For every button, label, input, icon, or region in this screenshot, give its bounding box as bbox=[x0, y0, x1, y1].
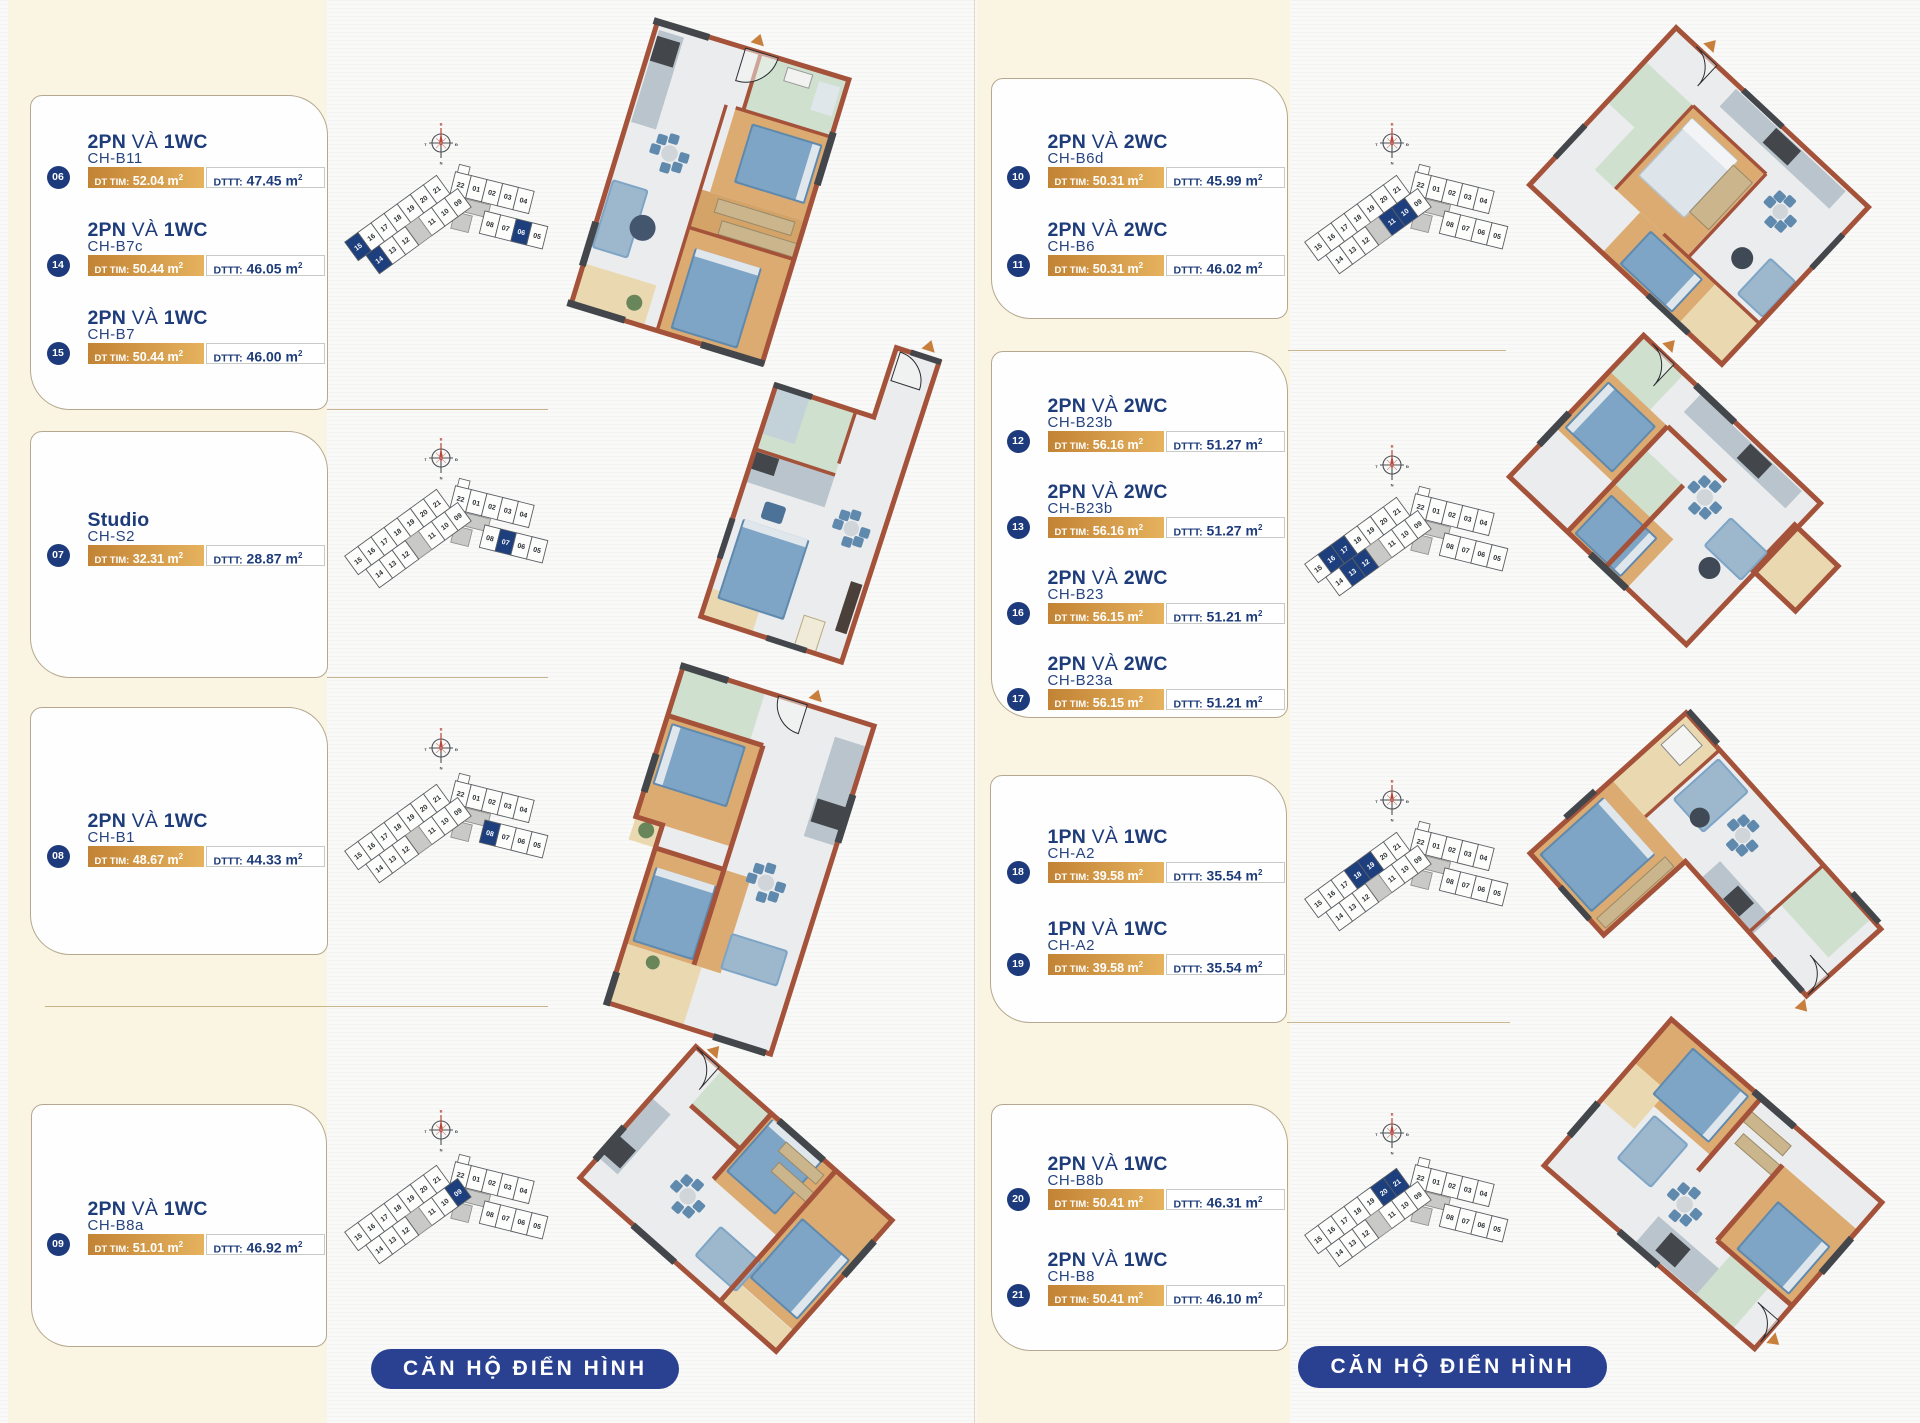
svg-text:B: B bbox=[1391, 779, 1394, 784]
svg-text:T: T bbox=[424, 457, 427, 462]
svg-text:T: T bbox=[1375, 142, 1378, 147]
svg-text:N: N bbox=[440, 161, 443, 166]
svg-text:T: T bbox=[424, 747, 427, 752]
svg-text:N: N bbox=[1391, 161, 1394, 166]
svg-text:B: B bbox=[1391, 122, 1394, 127]
svg-text:N: N bbox=[440, 476, 443, 481]
svg-text:Đ: Đ bbox=[455, 747, 458, 752]
svg-text:B: B bbox=[1391, 1112, 1394, 1117]
svg-text:B: B bbox=[440, 122, 443, 127]
svg-text:N: N bbox=[1391, 818, 1394, 823]
svg-text:N: N bbox=[1391, 483, 1394, 488]
svg-text:T: T bbox=[424, 1129, 427, 1134]
svg-text:N: N bbox=[440, 1148, 443, 1153]
svg-text:Đ: Đ bbox=[1406, 464, 1409, 469]
svg-text:Đ: Đ bbox=[1406, 1132, 1409, 1137]
svg-text:N: N bbox=[1391, 1151, 1394, 1156]
svg-text:Đ: Đ bbox=[1406, 142, 1409, 147]
svg-text:Đ: Đ bbox=[455, 142, 458, 147]
svg-text:B: B bbox=[1391, 444, 1394, 449]
svg-text:T: T bbox=[1375, 464, 1378, 469]
svg-text:T: T bbox=[424, 142, 427, 147]
svg-text:B: B bbox=[440, 437, 443, 442]
svg-text:B: B bbox=[440, 727, 443, 732]
svg-text:N: N bbox=[440, 766, 443, 771]
svg-text:B: B bbox=[440, 1109, 443, 1114]
svg-text:Đ: Đ bbox=[1406, 799, 1409, 804]
svg-text:Đ: Đ bbox=[455, 1129, 458, 1134]
svg-text:Đ: Đ bbox=[455, 457, 458, 462]
svg-text:T: T bbox=[1375, 1132, 1378, 1137]
svg-text:T: T bbox=[1375, 799, 1378, 804]
